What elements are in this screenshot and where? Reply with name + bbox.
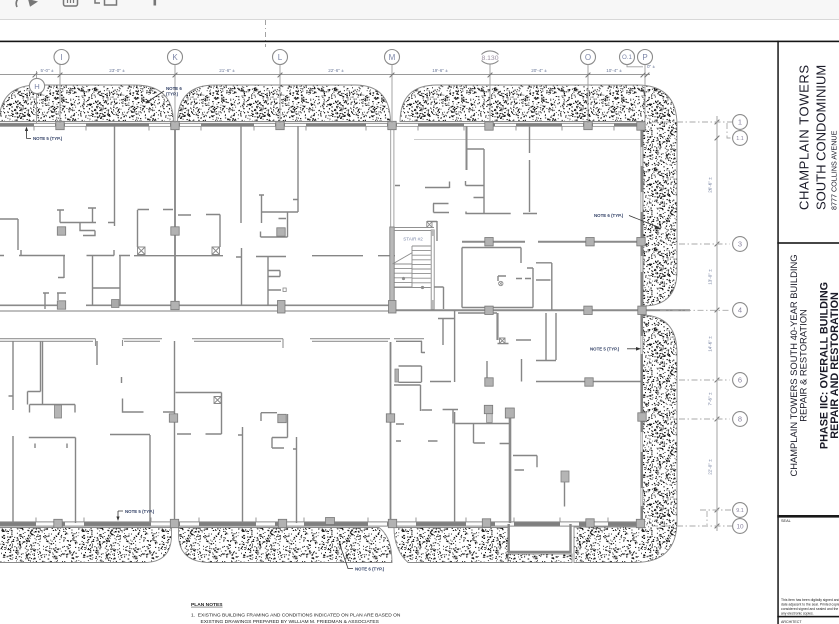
svg-text:14'-6" ±: 14'-6" ± bbox=[708, 336, 713, 352]
svg-text:REPAIR AND RESTORATION: REPAIR AND RESTORATION bbox=[829, 292, 839, 439]
svg-text:EXISTING DRAWINGS PREPARED BY: EXISTING DRAWINGS PREPARED BY WILLIAM M.… bbox=[201, 619, 380, 624]
svg-text:8: 8 bbox=[738, 415, 742, 424]
svg-text:P: P bbox=[642, 53, 647, 62]
svg-text:ARCHITECT: ARCHITECT bbox=[781, 620, 802, 624]
svg-text:8777 COLLINS AVENUE: 8777 COLLINS AVENUE bbox=[830, 130, 839, 210]
svg-text:1. EXISTING BUILDING FRAMING: 1. EXISTING BUILDING FRAMING AND CONDITI… bbox=[191, 613, 401, 619]
svg-text:23'-0" ±: 23'-0" ± bbox=[109, 68, 125, 73]
svg-text:22'-6" ±: 22'-6" ± bbox=[328, 68, 344, 73]
svg-text:NOTE 6 (TYP.): NOTE 6 (TYP.) bbox=[594, 213, 624, 218]
svg-text:0" ±: 0" ± bbox=[647, 64, 655, 69]
svg-text:H: H bbox=[34, 82, 39, 91]
svg-text:any electronic copies.: any electronic copies. bbox=[781, 612, 814, 616]
svg-text:SEAL: SEAL bbox=[781, 519, 791, 523]
svg-text:10'-4" ±: 10'-4" ± bbox=[606, 68, 622, 73]
svg-text:O.1: O.1 bbox=[622, 54, 633, 61]
svg-text:SOUTH CONDOMINIUM: SOUTH CONDOMINIUM bbox=[814, 65, 829, 210]
svg-text:PLAN NOTES: PLAN NOTES bbox=[191, 602, 223, 608]
svg-text:L: L bbox=[278, 53, 283, 62]
svg-text:1.1: 1.1 bbox=[736, 136, 744, 142]
svg-text:K: K bbox=[172, 53, 178, 62]
svg-text:6: 6 bbox=[738, 376, 742, 385]
svg-text:26'-6" ±: 26'-6" ± bbox=[708, 177, 713, 193]
svg-text:NOTE 5 (TYP.): NOTE 5 (TYP.) bbox=[33, 136, 63, 141]
svg-text:REPAIR & RESTORATION: REPAIR & RESTORATION bbox=[798, 309, 809, 422]
svg-text:13'-0" ±: 13'-0" ± bbox=[708, 269, 713, 285]
svg-text:M: M bbox=[389, 53, 396, 62]
svg-text:I: I bbox=[60, 53, 62, 62]
svg-text:NOTE 6: NOTE 6 bbox=[166, 86, 182, 91]
svg-text:22'-0" ±: 22'-0" ± bbox=[708, 459, 713, 475]
svg-text:CHAMPLAIN TOWERS: CHAMPLAIN TOWERS bbox=[797, 64, 812, 210]
svg-text:10: 10 bbox=[736, 523, 744, 530]
svg-text:21'-6" ±: 21'-6" ± bbox=[219, 68, 235, 73]
svg-text:date adjacent to the seal. Pri: date adjacent to the seal. Printed copie… bbox=[781, 603, 839, 607]
svg-text:(TYP.): (TYP.) bbox=[166, 92, 179, 97]
svg-text:7'-6" ±: 7'-6" ± bbox=[708, 392, 713, 405]
svg-text:NOTE 5 (TYP.): NOTE 5 (TYP.) bbox=[590, 347, 620, 352]
svg-text:This item has been digitally s: This item has been digitally signed and … bbox=[781, 598, 839, 602]
svg-text:NOTE 5 (TYP.): NOTE 5 (TYP.) bbox=[125, 509, 155, 514]
svg-text:19'-6" ±: 19'-6" ± bbox=[432, 68, 448, 73]
svg-text:1: 1 bbox=[738, 118, 742, 127]
svg-text:4: 4 bbox=[738, 306, 742, 315]
svg-text:5'-0" ±: 5'-0" ± bbox=[41, 68, 54, 73]
svg-text:3: 3 bbox=[738, 240, 742, 249]
svg-text:8.130: 8.130 bbox=[481, 55, 498, 62]
svg-text:considered signed and sealed a: considered signed and sealed and the sig… bbox=[781, 607, 839, 611]
svg-text:9.1: 9.1 bbox=[736, 508, 744, 514]
svg-text:STAIR #2: STAIR #2 bbox=[403, 237, 423, 242]
svg-text:20'-4" ±: 20'-4" ± bbox=[531, 68, 547, 73]
svg-text:NOTE 6 (TYP.): NOTE 6 (TYP.) bbox=[355, 567, 385, 572]
svg-text:O: O bbox=[585, 53, 591, 62]
